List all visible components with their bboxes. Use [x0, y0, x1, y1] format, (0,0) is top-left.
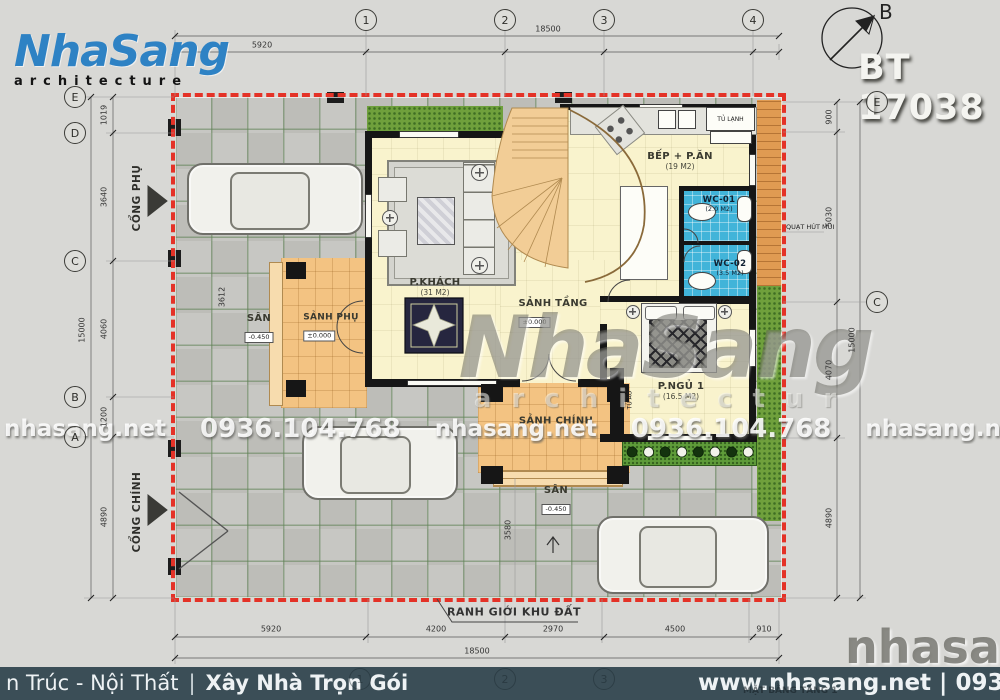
dim-label: 5920: [261, 625, 281, 634]
grid-bubble-top-3: 3: [593, 9, 615, 31]
dim-label: 3640: [100, 187, 109, 207]
floor-plan-sheet: TỦ LẠNH P.KHÁCH (31 M2) BẾP + P.ĂN (19 M…: [0, 0, 1000, 700]
dim-label: 4890: [100, 507, 109, 527]
grid-bubble-right-C: C: [866, 291, 888, 313]
grid-bubble-top-4: 4: [742, 9, 764, 31]
grid-bubble-right-E: E: [866, 91, 888, 113]
grid-bubble-bottom-2: 2: [494, 668, 516, 690]
dim-label: 4890: [825, 508, 834, 528]
grid-bubble-left-D: D: [64, 122, 86, 144]
dim-label: 5030: [825, 207, 834, 227]
plan-title: MẶT BẰNG TẦNG 1: [743, 686, 838, 696]
dim-label: 4070: [825, 360, 834, 380]
grid-bubble-left-C: C: [64, 250, 86, 272]
dim-label: 2970: [543, 625, 563, 634]
dim-label: 18500: [535, 25, 560, 34]
dim-label: 4200: [426, 625, 446, 634]
grid-bubble-bottom-1: 1: [349, 668, 371, 690]
dim-label: 15000: [848, 327, 857, 352]
dim-label: 5920: [252, 41, 272, 50]
dim-label: 3580: [504, 520, 513, 540]
dim-label: 1200: [100, 407, 109, 427]
grid-bubble-left-B: B: [64, 386, 86, 408]
grid-bubble-top-2: 2: [494, 9, 516, 31]
generated-annotations: 1234EDCBAEC12318500592059204200297045009…: [0, 0, 1000, 700]
grid-bubble-bottom-3: 3: [593, 668, 615, 690]
grid-bubble-top-1: 1: [355, 9, 377, 31]
dim-label: 4500: [665, 625, 685, 634]
grid-bubble-left-A: A: [64, 426, 86, 448]
dim-label: 900: [825, 109, 834, 124]
dim-label: 1019: [100, 105, 109, 125]
dim-label: 910: [756, 625, 771, 634]
grid-bubble-left-E: E: [64, 86, 86, 108]
dim-label: 18500: [464, 647, 489, 656]
dim-label: 15000: [78, 317, 87, 342]
dim-label: 3612: [218, 287, 227, 307]
dim-label: 4060: [100, 319, 109, 339]
